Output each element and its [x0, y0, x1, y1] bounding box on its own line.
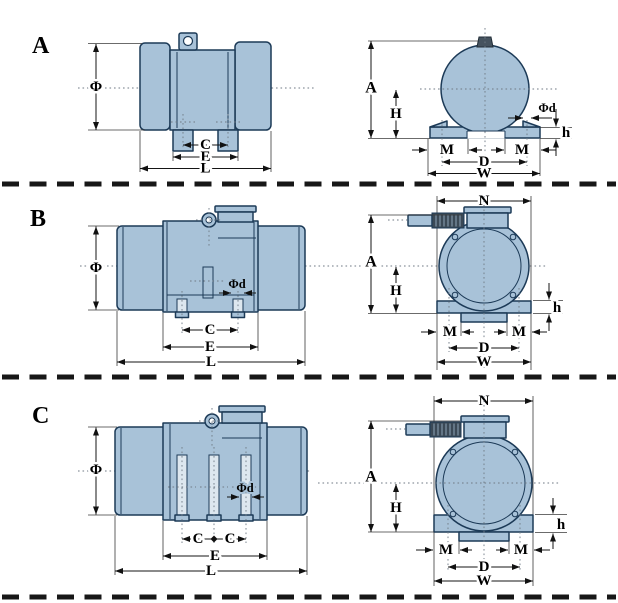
section-letter-b: B	[30, 206, 46, 232]
dim-label-phi: Φ	[90, 79, 102, 95]
dim-label-m: M	[440, 142, 454, 158]
dim-label-c: C	[225, 531, 236, 547]
dim-label-m: M	[439, 542, 453, 558]
dim-label-w: W	[477, 573, 492, 589]
dim-label-a: A	[365, 254, 377, 271]
dim-label-m: M	[443, 324, 457, 340]
junction-box	[464, 422, 506, 438]
dim-label-e: E	[205, 339, 215, 355]
cable-gland-nut	[406, 424, 430, 435]
dim-label-l: L	[206, 563, 216, 579]
dim-label-m: M	[514, 542, 528, 558]
technical-drawing-page: A Φ C E	[0, 0, 618, 603]
dim-label-m: M	[515, 142, 529, 158]
dim-label-a: A	[365, 80, 377, 97]
thread-hatching	[434, 424, 458, 436]
junction-box	[467, 213, 508, 228]
motor-body	[170, 50, 235, 130]
dim-label-w: W	[477, 354, 492, 370]
dim-label-w: W	[477, 166, 492, 182]
motor-housing-circle	[439, 221, 529, 311]
base-notch	[468, 131, 505, 139]
section-letter-a: A	[32, 33, 50, 59]
junction-box-lid	[215, 206, 256, 212]
dim-label-h-upper: H	[390, 500, 402, 516]
junction-box	[222, 412, 262, 423]
dim-label-c: C	[205, 322, 216, 338]
dim-label-phid: Φd	[236, 481, 253, 495]
junction-box-lid	[219, 406, 265, 412]
motor-end-cap	[235, 42, 271, 130]
dim-label-m: M	[512, 324, 526, 340]
lifting-eye-hole	[184, 37, 193, 46]
dim-label-h-upper: H	[390, 106, 402, 122]
dim-label-e: E	[210, 548, 220, 564]
dim-label-h-lower: h	[553, 300, 562, 316]
dim-label-h-upper: H	[390, 283, 402, 299]
dim-label-l: L	[200, 161, 210, 177]
dim-label-a: A	[365, 469, 377, 486]
dim-label-phi: Φ	[90, 462, 102, 478]
dim-label-l: L	[206, 354, 216, 370]
thread-hatching	[436, 215, 460, 227]
junction-box-lid	[464, 207, 511, 213]
dim-label-phid: Φd	[538, 101, 555, 115]
junction-box	[218, 212, 253, 222]
dim-label-h-lower: h	[562, 125, 571, 141]
motor-end-cap	[140, 43, 170, 130]
technical-drawing-canvas: A Φ C E	[0, 0, 618, 603]
dim-label-phi: Φ	[90, 260, 102, 276]
junction-box-lid	[461, 416, 509, 422]
cable-gland-nut	[408, 215, 432, 226]
dim-label-phid: Φd	[228, 277, 245, 291]
dim-label-c: C	[193, 531, 204, 547]
section-letter-c: C	[32, 403, 49, 429]
dim-label-h-lower: h	[557, 517, 566, 533]
